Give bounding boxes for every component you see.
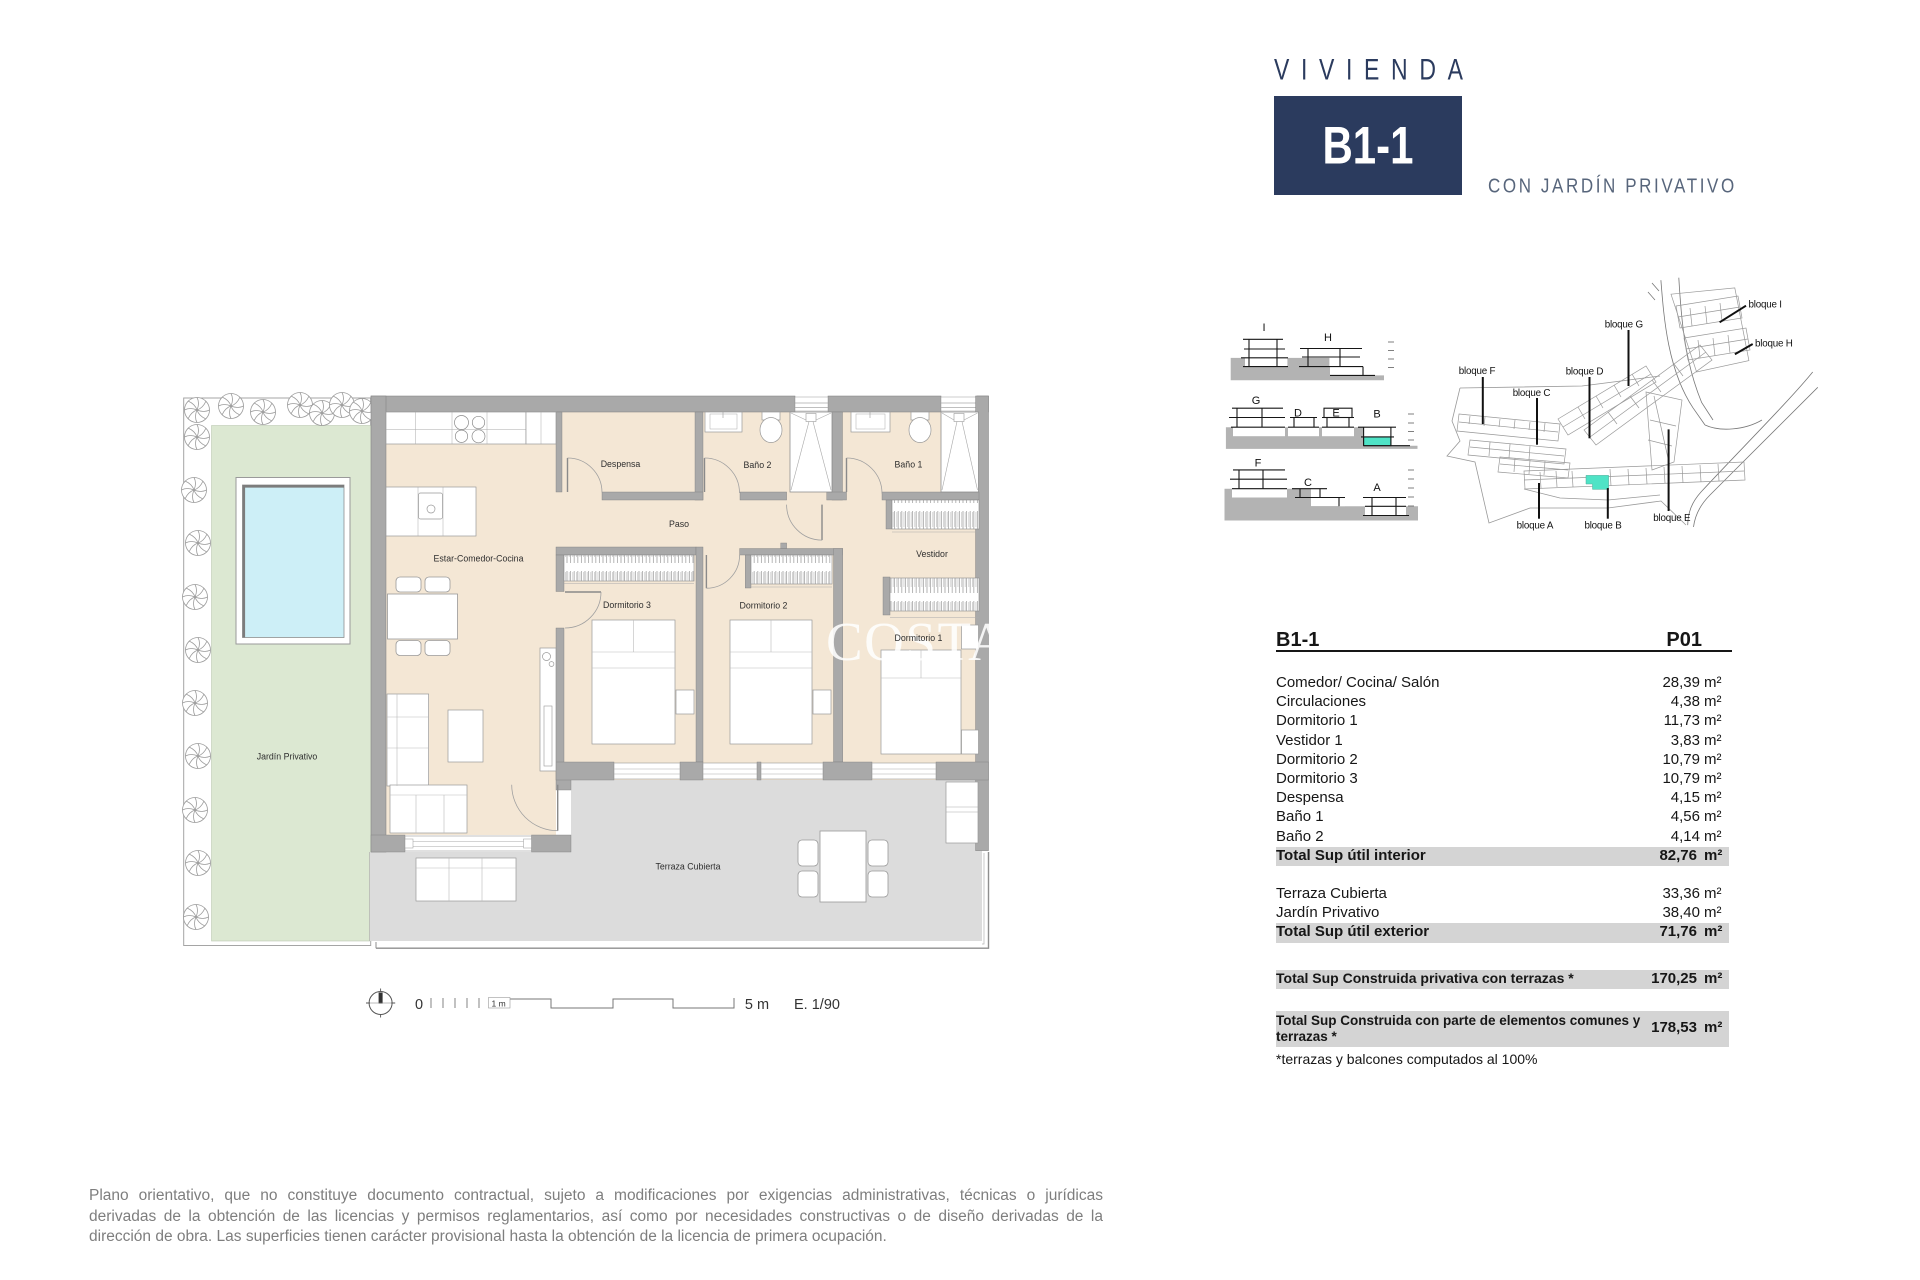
svg-text:G: G bbox=[1252, 395, 1261, 407]
svg-text:E. 1/90: E. 1/90 bbox=[794, 997, 840, 1013]
svg-text:Dormitorio 2: Dormitorio 2 bbox=[740, 601, 788, 611]
svg-text:bloque C: bloque C bbox=[1513, 388, 1551, 399]
svg-text:bloque I: bloque I bbox=[1749, 300, 1782, 311]
svg-text:Dormitorio 1: Dormitorio 1 bbox=[895, 633, 943, 643]
svg-text:H: H bbox=[1324, 332, 1332, 344]
svg-text:Vestidor: Vestidor bbox=[916, 549, 948, 559]
svg-text:Baño 2: Baño 2 bbox=[744, 460, 772, 470]
svg-text:bloque B: bloque B bbox=[1584, 521, 1622, 532]
svg-text:Despensa: Despensa bbox=[601, 459, 641, 469]
svg-text:I: I bbox=[1262, 322, 1265, 334]
svg-text:5 m: 5 m bbox=[745, 997, 769, 1013]
svg-text:A: A bbox=[1373, 482, 1381, 494]
svg-text:Estar-Comedor-Cocina: Estar-Comedor-Cocina bbox=[434, 554, 524, 564]
svg-text:Jardín Privativo: Jardín Privativo bbox=[257, 752, 318, 762]
svg-text:E: E bbox=[1332, 408, 1339, 420]
svg-text:Terraza Cubierta: Terraza Cubierta bbox=[655, 862, 720, 872]
svg-text:Paso: Paso bbox=[669, 519, 689, 529]
svg-text:1 m: 1 m bbox=[492, 999, 506, 1009]
svg-text:B: B bbox=[1373, 409, 1380, 421]
svg-text:F: F bbox=[1255, 458, 1262, 470]
svg-text:C: C bbox=[1304, 477, 1312, 489]
svg-text:bloque E: bloque E bbox=[1653, 513, 1691, 524]
svg-text:bloque A: bloque A bbox=[1517, 521, 1554, 532]
svg-text:bloque D: bloque D bbox=[1566, 367, 1604, 378]
svg-text:Baño 1: Baño 1 bbox=[895, 460, 923, 470]
svg-text:0: 0 bbox=[415, 997, 423, 1013]
svg-text:D: D bbox=[1294, 408, 1302, 420]
svg-text:bloque F: bloque F bbox=[1459, 366, 1496, 377]
svg-text:bloque H: bloque H bbox=[1755, 339, 1793, 350]
svg-text:Dormitorio 3: Dormitorio 3 bbox=[603, 600, 651, 610]
svg-text:bloque G: bloque G bbox=[1605, 320, 1643, 331]
